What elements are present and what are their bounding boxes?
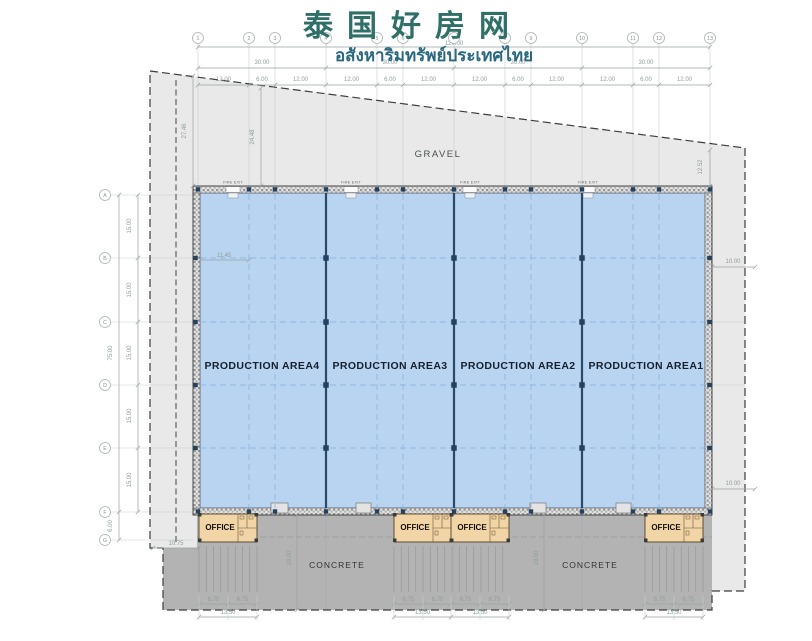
dim-label: 6.75 (654, 597, 666, 603)
column (631, 509, 635, 513)
site-plan-drawing: 120.0011.4527.4624.4812.5210.0010.0010.7… (0, 0, 812, 641)
column (580, 509, 584, 513)
column (323, 445, 329, 451)
column (529, 509, 533, 513)
column (701, 539, 705, 543)
door-vestibule (356, 503, 371, 513)
fire-exit-label: FIRE EXIT (578, 181, 598, 185)
column (451, 319, 457, 325)
column (657, 509, 661, 513)
grid-bubble-label: F (103, 510, 106, 516)
column (452, 187, 456, 191)
column (375, 187, 379, 191)
column (323, 255, 329, 261)
fire-exit-door (463, 187, 477, 193)
exterior-wall (193, 193, 200, 508)
dim-label: 12.52 (698, 159, 704, 175)
column (707, 320, 711, 324)
dim-label: 24.48 (250, 129, 256, 145)
dim-label: 6.75 (489, 597, 501, 603)
dim-label: 12.00 (472, 77, 488, 83)
dim-label: 19.00 (287, 550, 293, 566)
column (644, 513, 648, 517)
grid-bubble-label: D (103, 383, 107, 389)
dim-label: 12.00 (600, 77, 616, 83)
production-area-label: PRODUCTION AREA1 (588, 360, 703, 372)
page-subtitle: อสังหาริมทรัพย์ประเทศไทย (28, 42, 812, 69)
dim-label: 6.75 (683, 597, 695, 603)
dim-label: 10.00 (725, 481, 741, 487)
fire-exit-door (226, 187, 240, 193)
office-label: OFFICE (457, 523, 487, 532)
dim-label: 6.75 (460, 597, 472, 603)
production-floor (200, 193, 705, 508)
dim-label: 15.00 (127, 345, 133, 361)
column (323, 382, 329, 388)
column (193, 320, 197, 324)
grid-bubble-label: A (103, 193, 107, 199)
column (401, 187, 405, 191)
dim-label: 13.50 (415, 610, 431, 616)
dim-label: 75.00 (108, 345, 114, 361)
dim-label: 6.00 (640, 77, 652, 83)
gravel-label: GRAVEL (415, 149, 462, 160)
office-label: OFFICE (400, 523, 430, 532)
column (503, 187, 507, 191)
column (393, 539, 397, 543)
column (273, 187, 277, 191)
fire-exit-landing (465, 193, 475, 198)
dim-label: 15.00 (127, 472, 133, 488)
production-area-label: PRODUCTION AREA2 (460, 360, 575, 372)
concrete-label: CONCRETE (562, 560, 618, 570)
warehouse-building (193, 186, 712, 515)
column (323, 319, 329, 325)
column (579, 255, 585, 261)
dim-label: 13.50 (472, 610, 488, 616)
column (450, 539, 454, 543)
column (529, 187, 533, 191)
column (247, 187, 251, 191)
column (393, 513, 397, 517)
dim-label: 12.00 (293, 77, 309, 83)
concrete-slab (163, 548, 197, 610)
dim-label: 10.00 (725, 259, 741, 265)
column (579, 319, 585, 325)
dim-label: 15.00 (127, 282, 133, 298)
column (193, 446, 197, 450)
dim-label: 6.00 (108, 520, 114, 532)
page-title: 泰国好房网 (0, 1, 812, 45)
column (198, 539, 202, 543)
dim-label: 12.00 (421, 77, 437, 83)
column (507, 539, 511, 543)
grid-bubble-label: B (103, 256, 107, 262)
concrete-label: CONCRETE (309, 560, 365, 570)
dim-label: 15.00 (127, 218, 133, 234)
dim-label: 12.00 (344, 77, 360, 83)
dim-label: 19.00 (534, 550, 540, 566)
fire-exit-label: FIRE EXIT (341, 181, 361, 185)
production-area-label: PRODUCTION AREA4 (204, 360, 319, 372)
column (324, 509, 328, 513)
column (707, 383, 711, 387)
column (193, 383, 197, 387)
fire-exit-label: FIRE EXIT (460, 181, 480, 185)
fire-exit-door (344, 187, 358, 193)
column (707, 256, 711, 260)
dim-label: 13.50 (220, 610, 236, 616)
column (401, 509, 405, 513)
dim-label: 6.75 (403, 597, 415, 603)
grid-bubble-label: C (103, 320, 107, 326)
column (644, 539, 648, 543)
office-label: OFFICE (651, 523, 681, 532)
column (451, 445, 457, 451)
fire-exit-landing (346, 193, 356, 198)
dim-label: 6.75 (208, 597, 220, 603)
dim-label: 15.00 (127, 408, 133, 424)
dim-label: 12.00 (677, 77, 693, 83)
column (247, 509, 251, 513)
column (631, 187, 635, 191)
column (579, 382, 585, 388)
office-label: OFFICE (205, 523, 235, 532)
dim-label: 11.45 (217, 253, 232, 259)
fire-exit-label: FIRE EXIT (223, 181, 243, 185)
column (375, 509, 379, 513)
dim-label: 6.75 (432, 597, 444, 603)
grid-bubble-label: E (103, 446, 107, 452)
grid-bubble-label: G (103, 538, 107, 544)
column (450, 513, 454, 517)
column (507, 513, 511, 517)
column (657, 187, 661, 191)
column (193, 256, 197, 260)
column (255, 539, 259, 543)
column (324, 187, 328, 191)
dim-label: 13.50 (666, 610, 682, 616)
dim-label: 12.00 (216, 77, 232, 83)
column (701, 513, 705, 517)
column (198, 513, 202, 517)
column (707, 446, 711, 450)
door-vestibule (616, 503, 631, 513)
column (451, 382, 457, 388)
dim-label: 12.00 (549, 77, 565, 83)
production-area-label: PRODUCTION AREA3 (332, 360, 447, 372)
dim-label: 6.00 (256, 77, 268, 83)
floor-plan-page: 120.0011.4527.4624.4812.5210.0010.0010.7… (0, 0, 812, 641)
column (451, 255, 457, 261)
column (255, 513, 259, 517)
column (580, 187, 584, 191)
column (708, 509, 712, 513)
dim-label: 10.75 (168, 541, 184, 547)
dim-label: 27.46 (182, 123, 188, 139)
dim-label: 6.75 (237, 597, 249, 603)
fire-exit-landing (583, 193, 593, 198)
exterior-wall (705, 193, 712, 508)
column (579, 445, 585, 451)
column (196, 187, 200, 191)
dim-label: 6.00 (512, 77, 524, 83)
fire-exit-landing (228, 193, 238, 198)
column (273, 509, 277, 513)
dim-label: 6.00 (384, 77, 396, 83)
